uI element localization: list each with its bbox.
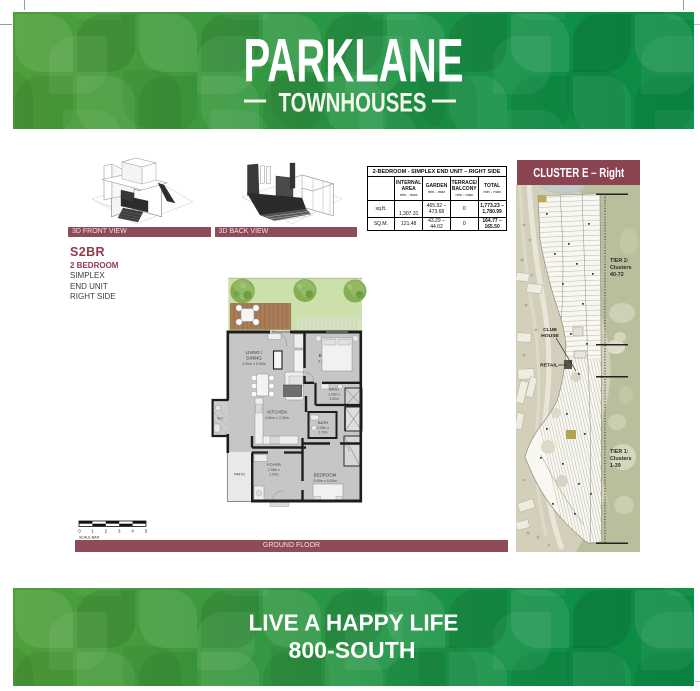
svg-text:40-72: 40-72 [610, 272, 624, 278]
svg-text:2.00m: 2.00m [269, 472, 278, 476]
svg-text:2.96m x: 2.96m x [268, 468, 280, 472]
svg-text:2: 2 [105, 529, 108, 534]
svg-text:BEDROOM: BEDROOM [314, 473, 337, 478]
svg-text:DINING: DINING [246, 356, 262, 361]
svg-text:CLUSTER E – Right: CLUSTER E – Right [533, 166, 625, 180]
svg-text:TOWNHOUSES: TOWNHOUSES [279, 88, 427, 118]
svg-text:2.70m: 2.70m [318, 430, 327, 434]
svg-text:3.80m x 3.30m: 3.80m x 3.30m [265, 416, 289, 420]
svg-text:KITCHEN: KITCHEN [267, 410, 286, 415]
svg-text:4: 4 [131, 529, 134, 534]
svg-text:RETAIL: RETAIL [540, 363, 558, 369]
svg-text:800-SOUTH: 800-SOUTH [289, 637, 416, 663]
svg-text:1: 1 [91, 529, 94, 534]
svg-text:4.20m x 5.90m: 4.20m x 5.90m [242, 362, 266, 366]
svg-text:3.60m: 3.60m [329, 397, 338, 401]
svg-text:1-39: 1-39 [610, 463, 621, 469]
svg-text:TIER 1:: TIER 1: [610, 449, 629, 455]
svg-text:PATIO: PATIO [234, 473, 245, 477]
svg-text:LIVING /: LIVING / [246, 350, 264, 355]
svg-text:Clusters: Clusters [610, 456, 632, 462]
svg-text:W.C.: W.C. [218, 417, 225, 421]
svg-text:PARKLANE: PARKLANE [244, 27, 464, 95]
svg-text:BATH: BATH [318, 420, 328, 425]
svg-text:HOUSE: HOUSE [541, 333, 559, 339]
svg-text:0: 0 [78, 529, 81, 534]
svg-text:TIER 2:: TIER 2: [610, 258, 629, 264]
svg-text:3.00m x 5.50m: 3.00m x 5.50m [313, 479, 337, 483]
svg-text:2.00m x: 2.00m x [317, 426, 329, 430]
svg-text:2.20m x: 2.20m x [328, 393, 340, 397]
svg-text:3: 3 [118, 529, 121, 534]
svg-text:5: 5 [145, 529, 148, 534]
svg-text:Clusters: Clusters [610, 265, 632, 271]
svg-text:SCALE BAR: SCALE BAR [79, 536, 100, 540]
svg-text:LIVE A HAPPY LIFE: LIVE A HAPPY LIFE [249, 610, 459, 636]
svg-text:FOYER: FOYER [267, 462, 281, 467]
